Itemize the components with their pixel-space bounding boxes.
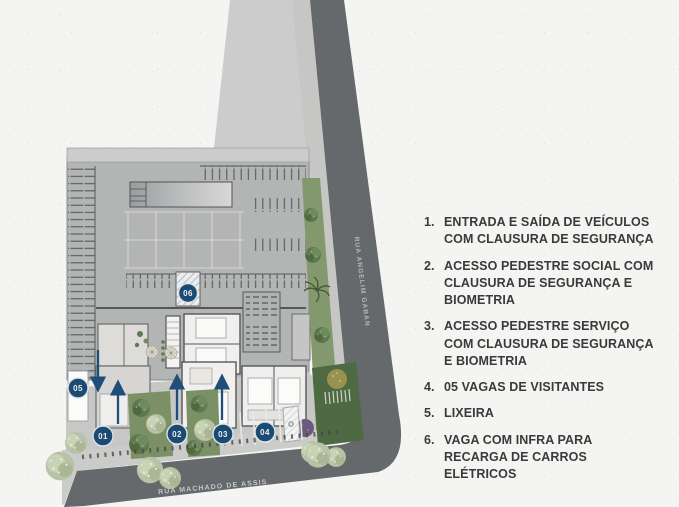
svg-text:02: 02 <box>172 430 182 439</box>
olive-tree <box>327 369 347 389</box>
legend-text: LIXEIRA <box>444 405 656 422</box>
legend-text: 05 VAGAS DE VISITANTES <box>444 379 656 396</box>
legend-item-5: 5. LIXEIRA <box>424 405 674 422</box>
svg-text:03: 03 <box>218 430 228 439</box>
marker-02: 02 <box>167 424 187 444</box>
legend-item-2: 2. ACESSO PEDESTRE SOCIAL COM CLAUSURA D… <box>424 258 674 310</box>
stair-shaft <box>166 316 180 368</box>
legend-number: 4. <box>424 379 444 396</box>
legend-item-1: 1. ENTRADA E SAÍDA DE VEÍCULOS COM CLAUS… <box>424 214 674 249</box>
marker-01: 01 <box>93 426 113 446</box>
legend-text: VAGA COM INFRA PARA RECARGA DE CARROS EL… <box>444 432 656 484</box>
svg-text:01: 01 <box>98 432 108 441</box>
building-top-band <box>67 148 309 162</box>
svg-text:05: 05 <box>73 384 83 393</box>
legend-item-6: 6. VAGA COM INFRA PARA RECARGA DE CARROS… <box>424 432 674 484</box>
page: 01 02 03 04 05 06 RUA MACHADO DE ASSIS R… <box>0 0 679 507</box>
svg-text:04: 04 <box>260 428 270 437</box>
marker-06: 06 <box>179 284 198 303</box>
legend-number: 1. <box>424 214 444 249</box>
svg-text:06: 06 <box>183 289 193 298</box>
legend-item-3: 3. ACESSO PEDESTRE SERVIÇO COM CLAUSURA … <box>424 318 674 370</box>
legend-number: 5. <box>424 405 444 422</box>
garage-ramp <box>130 182 232 207</box>
marker-05: 05 <box>68 378 88 398</box>
legend-text: ACESSO PEDESTRE SERVIÇO COM CLAUSURA DE … <box>444 318 656 370</box>
legend-item-4: 4. 05 VAGAS DE VISITANTES <box>424 379 674 396</box>
marker-04: 04 <box>255 422 275 442</box>
legend-number: 2. <box>424 258 444 310</box>
legend-number: 6. <box>424 432 444 484</box>
legend-text: ACESSO PEDESTRE SOCIAL COM CLAUSURA DE S… <box>444 258 656 310</box>
legend: 1. ENTRADA E SAÍDA DE VEÍCULOS COM CLAUS… <box>424 214 674 492</box>
legend-text: ENTRADA E SAÍDA DE VEÍCULOS COM CLAUSURA… <box>444 214 656 249</box>
legend-number: 3. <box>424 318 444 370</box>
marker-03: 03 <box>213 424 233 444</box>
